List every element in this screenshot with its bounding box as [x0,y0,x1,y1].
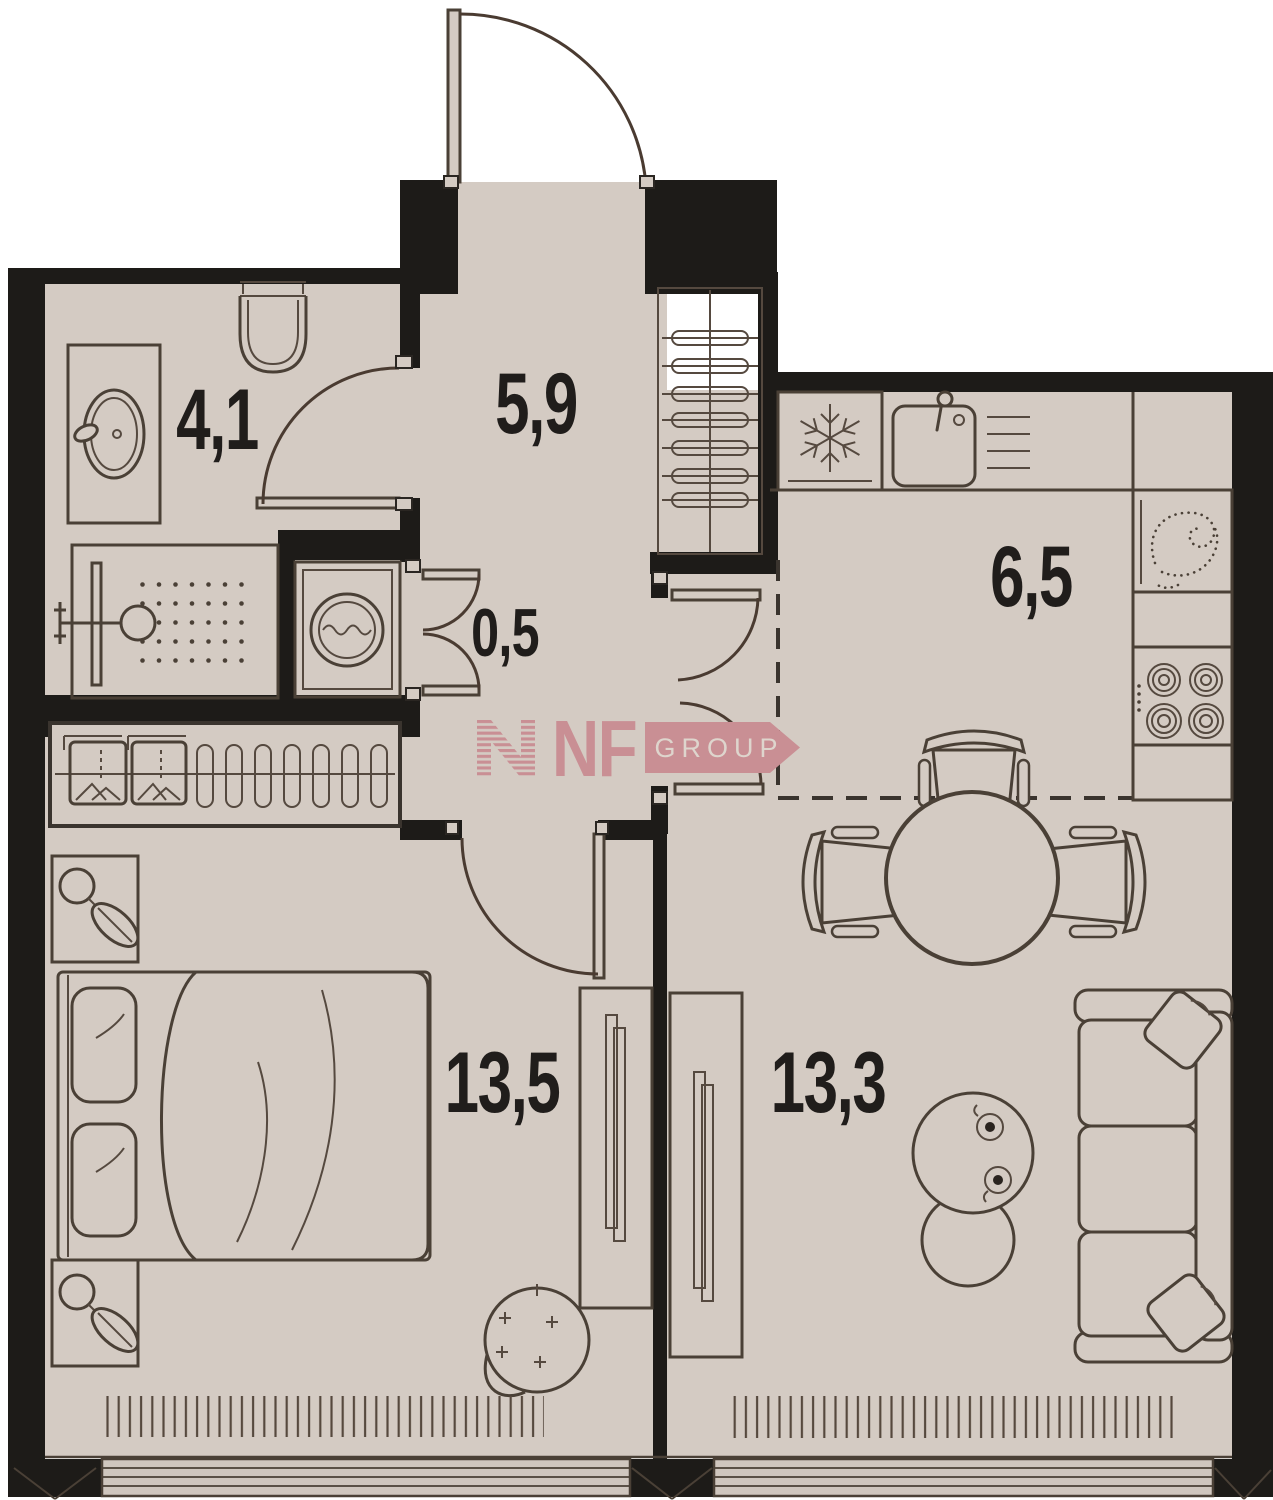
floor-plan: 4,1 5,9 0,5 6,5 13,5 13,3 NF GROUP [0,0,1273,1500]
radiator [106,1396,544,1437]
bedroom-area-label: 13,5 [445,1034,560,1130]
hallway-area-label: 5,9 [495,355,577,451]
duvet [161,972,428,1260]
living-room-area-label: 13,3 [771,1034,886,1130]
bathroom-area-label: 4,1 [176,371,258,467]
dining-table [886,792,1058,964]
radiator [733,1396,1177,1438]
window [102,1459,630,1496]
wardrobe [580,988,652,1308]
group-logo-text: GROUP [654,733,783,763]
wardrobe [670,993,742,1357]
entry-door-swing [448,10,646,186]
bedroom-closet-strip [50,723,400,826]
kitchen-area-label: 6,5 [990,528,1072,624]
storage-area-label: 0,5 [471,595,539,671]
sofa [1075,986,1232,1362]
floor-plan-drawing: 4,1 5,9 0,5 6,5 13,5 13,3 NF GROUP [0,0,1273,1500]
nf-logo-text: NF [552,704,636,794]
window [714,1459,1213,1496]
double-bed [58,972,430,1260]
